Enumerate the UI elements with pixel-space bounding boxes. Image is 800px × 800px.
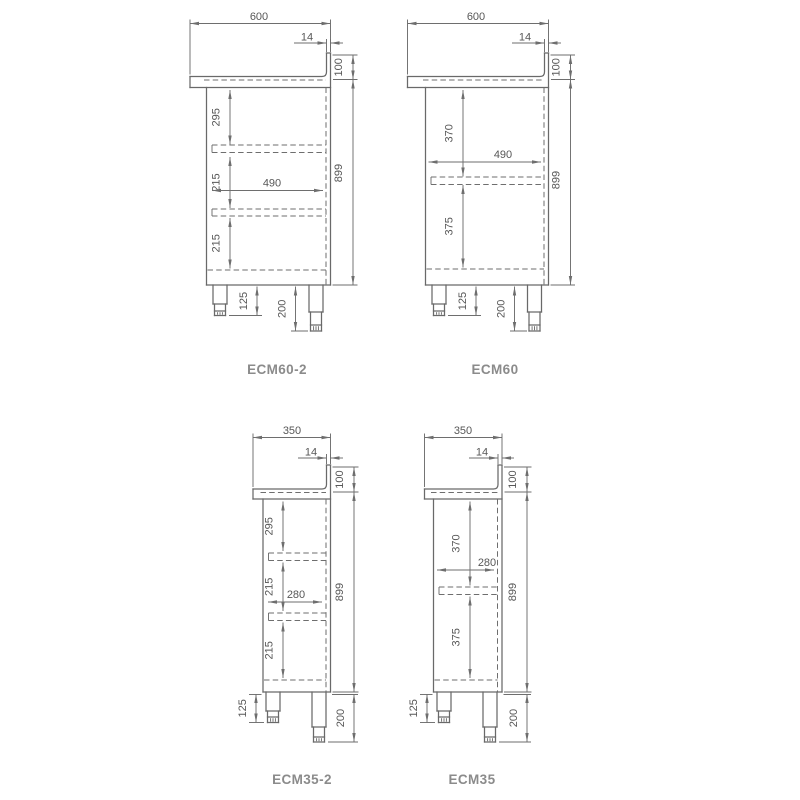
dimension-arrowhead (228, 260, 231, 269)
countertop-outline (408, 53, 545, 77)
dimension-arrowhead (502, 456, 511, 459)
dimension-arrowhead (493, 436, 502, 439)
dim-text-height: 899 (551, 171, 563, 189)
dimension-arrowhead (461, 168, 464, 177)
dimension-arrowhead (569, 55, 572, 64)
dim-text-splash-thickness: 14 (301, 32, 313, 44)
dimension-arrowhead (513, 287, 516, 296)
dim-text-vertical-0: 295 (264, 517, 276, 535)
dimension-arrowhead (352, 683, 355, 692)
dimension-arrowhead (437, 568, 446, 571)
dim-text-width: 350 (454, 425, 472, 437)
dim-text-width: 350 (283, 425, 301, 437)
dimension-arrowhead (281, 563, 284, 572)
dimension-arrowhead (474, 307, 477, 316)
cabinet-drawing-ecm35-2: 35014100899295215215280125200ECM35-2 (237, 425, 359, 787)
dimension-arrowhead (254, 694, 257, 703)
dimension-arrowhead (314, 189, 323, 192)
dim-text-splash-height: 100 (333, 58, 345, 76)
cabinet-drawing-ecm60-2: 60014100899295215215490125200ECM60-2 (190, 11, 358, 377)
dimension-arrowhead (525, 483, 528, 492)
dimension-arrowhead (322, 22, 331, 25)
dim-text-vertical-0: 370 (451, 534, 463, 552)
technical-drawing-sheet: 60014100899295215215490125200ECM60-26001… (0, 0, 800, 800)
dim-text-leg-height: 200 (277, 300, 289, 318)
dimension-arrowhead (425, 436, 434, 439)
dim-text-inner-width: 490 (263, 178, 281, 190)
dimension-arrowhead (228, 199, 231, 208)
dimension-arrowhead (569, 80, 572, 89)
dimension-arrowhead (281, 542, 284, 551)
dimension-arrowhead (268, 600, 277, 603)
dimension-arrowhead (513, 322, 516, 331)
dim-text-leg-adjust: 125 (237, 699, 249, 717)
dim-text-inner-width: 490 (494, 149, 512, 161)
dimension-arrowhead (281, 502, 284, 511)
dimension-arrowhead (352, 733, 355, 742)
cabinet-dimension-drawings: 60014100899295215215490125200ECM60-26001… (0, 0, 800, 800)
dimension-arrowhead (352, 492, 355, 501)
model-label: ECM60 (471, 362, 518, 377)
dimension-arrowhead (228, 90, 231, 99)
dimension-arrowhead (468, 577, 471, 586)
dimension-arrowhead (254, 714, 257, 723)
dimension-arrowhead (532, 160, 541, 163)
dimension-arrowhead (331, 456, 340, 459)
dim-text-leg-height: 200 (508, 709, 520, 727)
dimension-arrowhead (228, 157, 231, 166)
dimension-arrowhead (351, 80, 354, 89)
dim-text-vertical-1: 215 (264, 578, 276, 596)
dim-text-vertical-2: 215 (264, 641, 276, 659)
dim-text-height: 899 (507, 583, 519, 601)
dimension-arrowhead (255, 307, 258, 316)
dimension-arrowhead (318, 456, 327, 459)
dimension-arrowhead (461, 90, 464, 99)
dim-text-vertical-0: 295 (211, 108, 223, 126)
dimension-arrowhead (425, 694, 428, 703)
dim-text-width: 600 (250, 11, 268, 23)
dim-text-splash-thickness: 14 (476, 447, 488, 459)
model-label: ECM60-2 (247, 362, 307, 377)
dimension-arrowhead (190, 22, 199, 25)
dimension-arrowhead (228, 218, 231, 227)
dimension-arrowhead (352, 694, 355, 703)
countertop-outline (425, 465, 499, 489)
dimension-arrowhead (525, 467, 528, 476)
dim-text-leg-height: 200 (496, 300, 508, 318)
dimension-arrowhead (294, 287, 297, 296)
dimension-arrowhead (468, 669, 471, 678)
countertop-outline (253, 465, 327, 489)
model-label: ECM35-2 (272, 772, 332, 787)
dimension-arrowhead (351, 55, 354, 64)
dimension-arrowhead (425, 714, 428, 723)
dim-text-vertical-1: 375 (444, 217, 456, 235)
cabinet-drawing-ecm60: 60014100899370375490125200ECM60 (408, 11, 576, 377)
dimension-arrowhead (569, 71, 572, 80)
dimension-arrowhead (281, 623, 284, 632)
dim-text-splash-thickness: 14 (519, 32, 531, 44)
dimension-arrowhead (468, 597, 471, 606)
dim-text-splash-thickness: 14 (305, 447, 317, 459)
model-label: ECM35 (448, 772, 495, 787)
dimension-arrowhead (461, 185, 464, 194)
dim-text-vertical-1: 375 (451, 628, 463, 646)
dimension-arrowhead (281, 602, 284, 611)
dimension-arrowhead (468, 502, 471, 511)
dim-text-splash-height: 100 (551, 58, 563, 76)
dimension-arrowhead (525, 492, 528, 501)
dimension-arrowhead (331, 41, 340, 44)
dimension-arrowhead (540, 22, 549, 25)
dim-text-height: 899 (333, 164, 345, 182)
dimension-arrowhead (536, 41, 545, 44)
dimension-arrowhead (313, 600, 322, 603)
dimension-arrowhead (489, 456, 498, 459)
dimension-arrowhead (351, 71, 354, 80)
dimension-arrowhead (281, 669, 284, 678)
dimension-arrowhead (322, 436, 331, 439)
dim-text-width: 600 (467, 11, 485, 23)
countertop-outline (190, 53, 327, 77)
dimension-arrowhead (525, 733, 528, 742)
dim-text-splash-height: 100 (334, 470, 346, 488)
dimension-arrowhead (549, 41, 558, 44)
dimension-arrowhead (525, 683, 528, 692)
dimension-arrowhead (474, 287, 477, 296)
cabinet-drawing-ecm35: 35014100899370375280125200ECM35 (408, 425, 532, 787)
dimension-arrowhead (352, 467, 355, 476)
dimension-arrowhead (569, 276, 572, 285)
dimension-arrowhead (461, 259, 464, 268)
dim-text-leg-adjust: 125 (457, 292, 469, 310)
dimension-arrowhead (253, 436, 262, 439)
dim-text-vertical-0: 370 (444, 124, 456, 142)
dimension-arrowhead (255, 287, 258, 296)
dim-text-leg-height: 200 (335, 709, 347, 727)
dimension-arrowhead (294, 322, 297, 331)
dimension-arrowhead (318, 41, 327, 44)
dimension-arrowhead (352, 483, 355, 492)
dimension-arrowhead (408, 22, 417, 25)
dim-text-height: 899 (334, 583, 346, 601)
dimension-arrowhead (228, 136, 231, 145)
dim-text-splash-height: 100 (507, 470, 519, 488)
dim-text-leg-adjust: 125 (408, 699, 420, 717)
dim-text-leg-adjust: 125 (238, 292, 250, 310)
dim-text-vertical-2: 215 (211, 234, 223, 252)
dimension-arrowhead (429, 160, 438, 163)
dim-text-inner-width: 280 (287, 589, 305, 601)
dim-text-inner-width: 280 (478, 557, 496, 569)
dimension-arrowhead (351, 276, 354, 285)
dimension-arrowhead (525, 694, 528, 703)
